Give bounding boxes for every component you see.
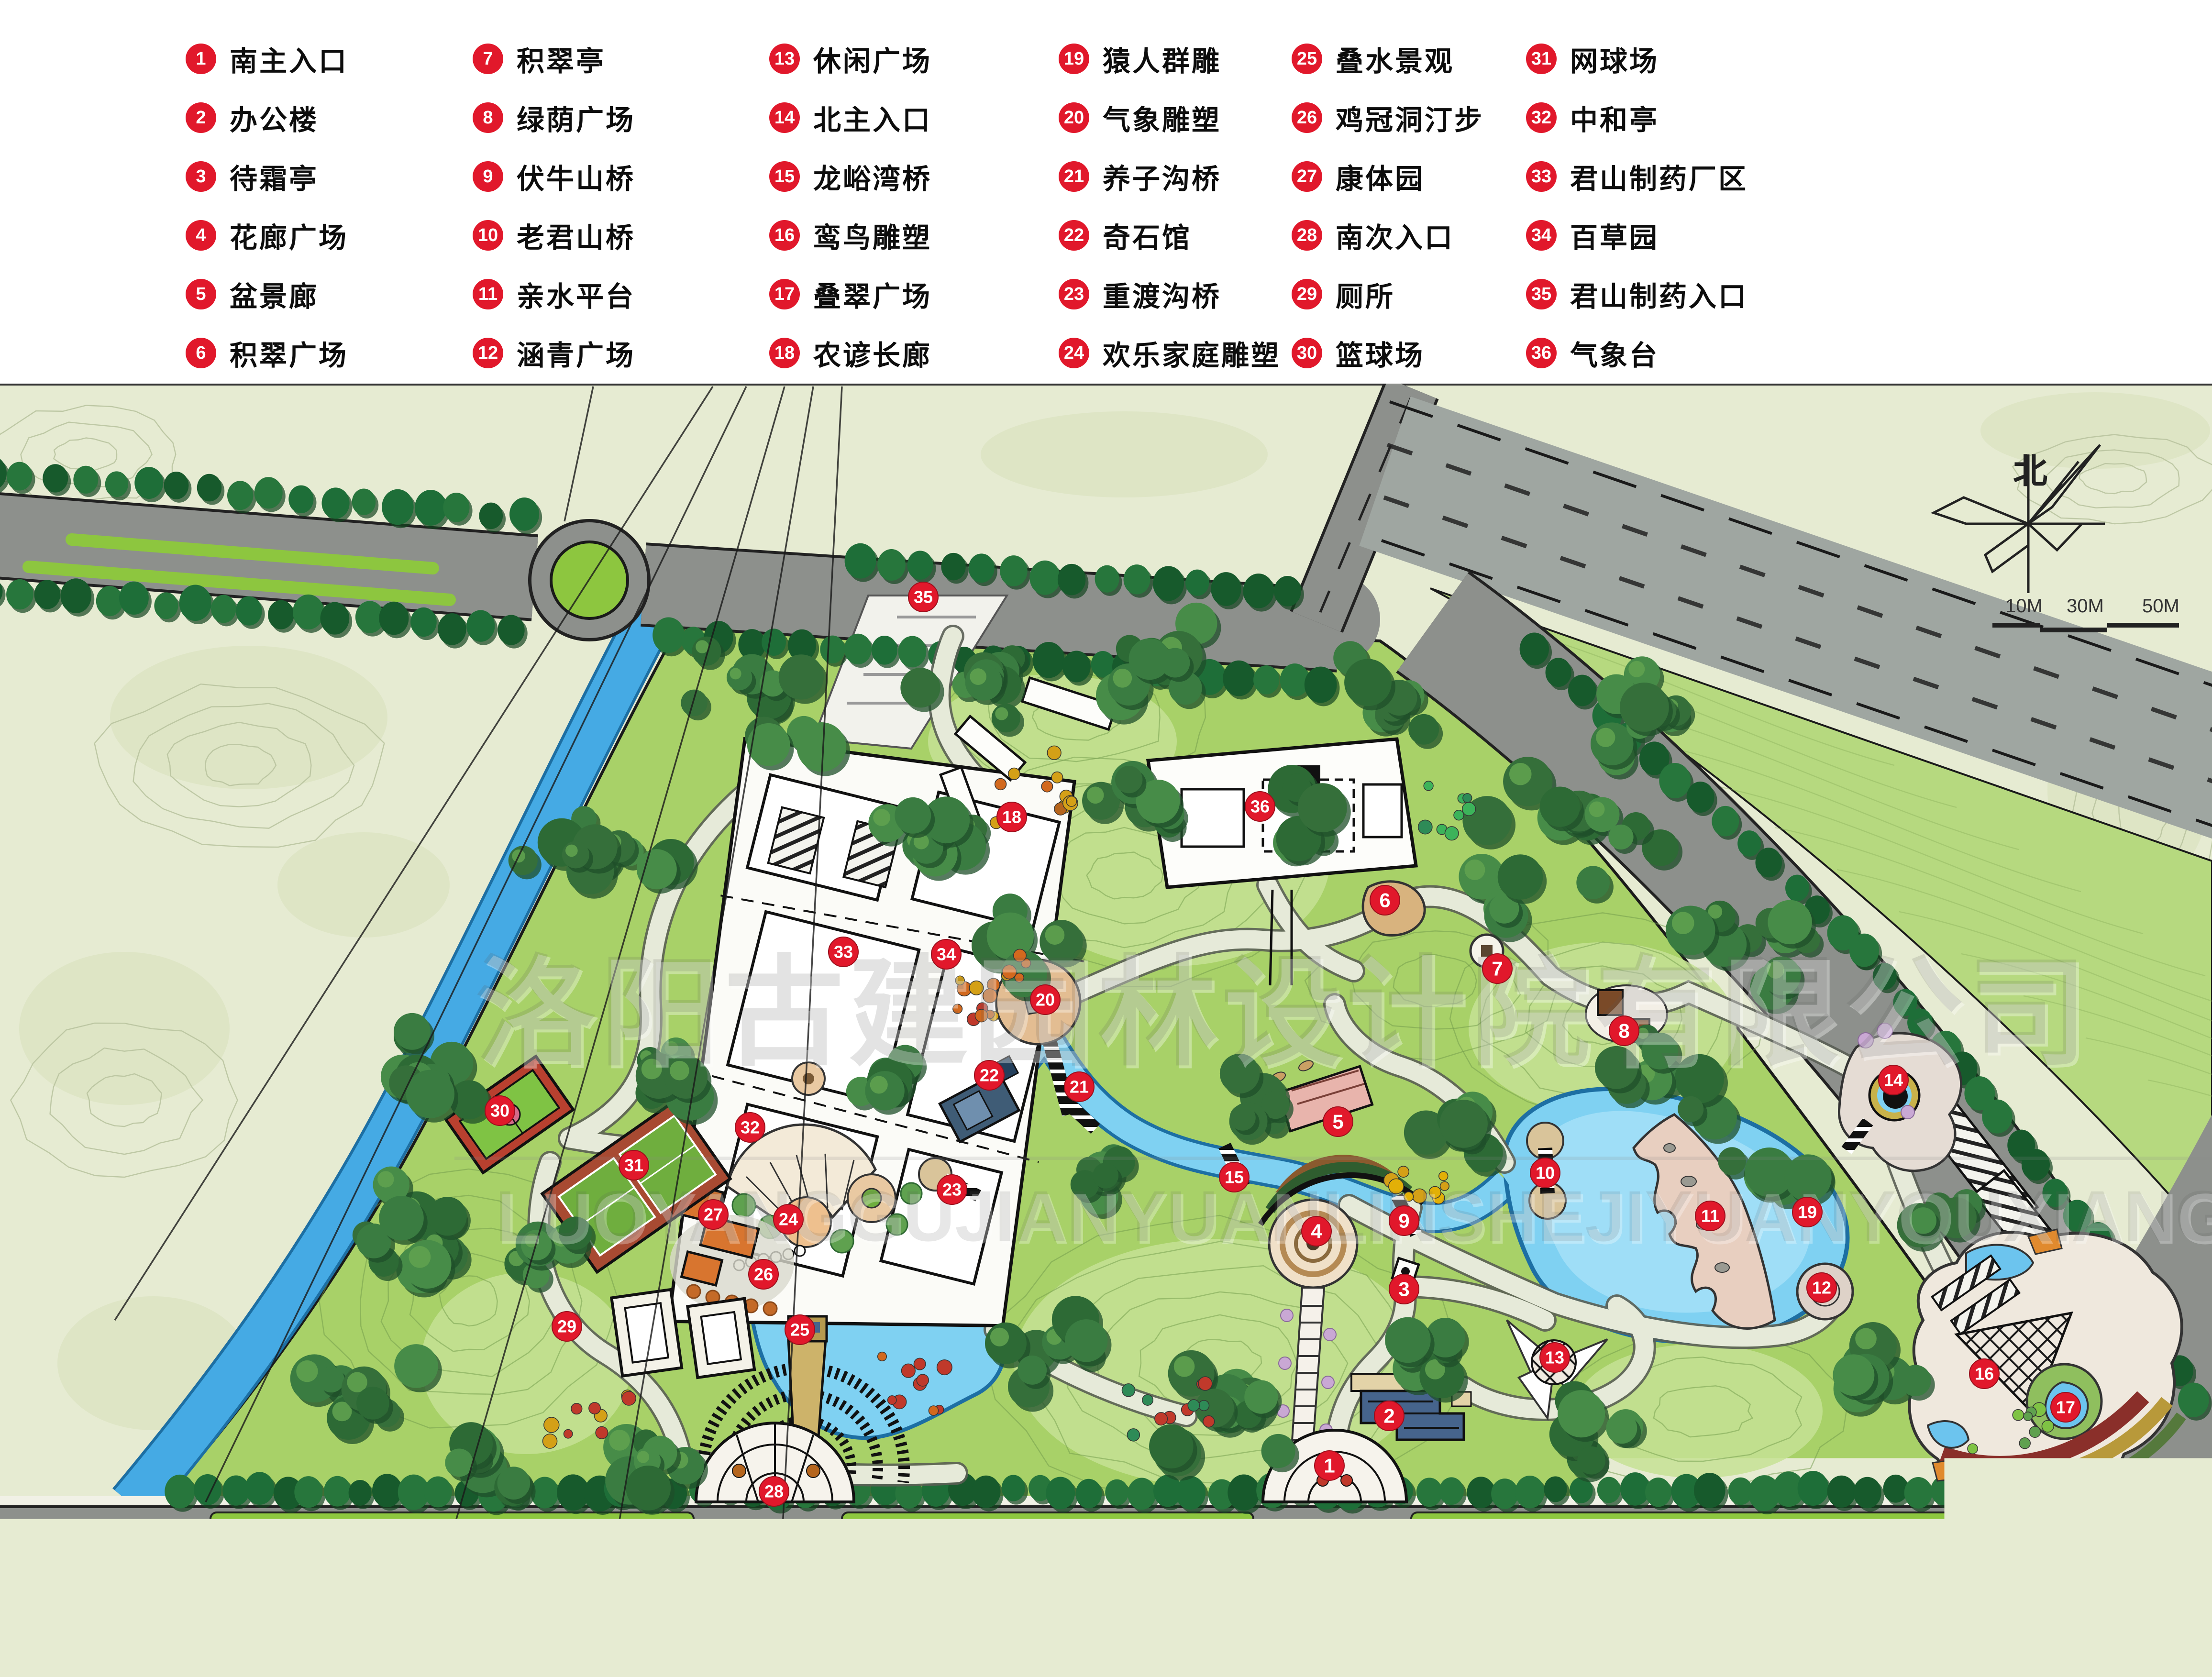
svg-text:23: 23 (942, 1180, 962, 1200)
legend-item-31: 31网球场 (1526, 44, 1659, 74)
map-marker-28: 28 (759, 1477, 789, 1506)
legend-label: 南主入口 (230, 39, 348, 79)
legend-item-33: 33君山制药厂区 (1526, 161, 1748, 192)
legend-label: 气象雕塑 (1103, 98, 1221, 138)
map-marker-8: 8 (1609, 1016, 1639, 1046)
legend-item-35: 35君山制药入口 (1526, 279, 1748, 309)
logo-company-name-cn: 洛阳古建园林设计院有限公司 (1713, 1612, 2198, 1645)
svg-text:25: 25 (790, 1320, 809, 1340)
legend-label: 积翠亭 (517, 39, 606, 79)
svg-text:11: 11 (1701, 1206, 1719, 1226)
legend-label: 办公楼 (230, 98, 319, 138)
legend-number-badge: 18 (769, 338, 800, 368)
svg-text:9: 9 (1398, 1210, 1409, 1232)
legend-label: 绿荫广场 (517, 98, 635, 138)
legend-item-22: 22奇石馆 (1059, 220, 1192, 251)
legend-number-badge: 6 (186, 338, 216, 368)
svg-text:16: 16 (1975, 1364, 1994, 1384)
legend-item-15: 15龙峪湾桥 (769, 161, 932, 192)
legend-label: 气象台 (1570, 333, 1659, 373)
legend-label: 中和亭 (1570, 98, 1659, 138)
legend-item-28: 28南次入口 (1292, 220, 1454, 251)
scale-30m: 30M (2067, 596, 2104, 617)
svg-text:5: 5 (1332, 1111, 1343, 1133)
map-marker-13: 13 (1540, 1343, 1570, 1372)
legend-number-badge: 22 (1059, 220, 1089, 251)
svg-text:33: 33 (834, 942, 853, 962)
legend-label: 龙峪湾桥 (813, 156, 932, 197)
legend-item-23: 23重渡沟桥 (1059, 279, 1221, 309)
legend-label: 鸡冠洞汀步 (1336, 98, 1484, 138)
legend-number-badge: 23 (1059, 279, 1089, 309)
legend-item-26: 26鸡冠洞汀步 (1292, 102, 1484, 133)
legend-number-badge: 17 (769, 279, 800, 309)
map-marker-7: 7 (1482, 954, 1512, 983)
company-logo: 洛阳古建园林设计院有限公司 LUOYANGGUJIANYUANLINSHEJIY… (1713, 1612, 2198, 1673)
legend-number-badge: 2 (186, 102, 216, 133)
legend-item-18: 18农谚长廊 (769, 338, 932, 368)
map-marker-22: 22 (974, 1060, 1004, 1090)
legend-number-badge: 14 (769, 102, 800, 133)
svg-text:8: 8 (1618, 1020, 1629, 1042)
legend-label: 待霜亭 (230, 156, 319, 197)
svg-text:24: 24 (779, 1210, 798, 1229)
map-marker-33: 33 (829, 937, 858, 967)
legend-number-badge: 32 (1526, 102, 1557, 133)
legend-label: 百草园 (1570, 215, 1659, 255)
legend-number-badge: 28 (1292, 220, 1322, 251)
svg-text:17: 17 (2056, 1398, 2075, 1417)
watermark-en: LUOYANGGUJIANYUANLINSHEJIYUANYOUXIANGONG… (495, 1176, 2212, 1256)
svg-text:19: 19 (1798, 1203, 1817, 1222)
svg-text:20: 20 (1036, 990, 1055, 1010)
svg-text:22: 22 (980, 1066, 999, 1085)
map-marker-5: 5 (1323, 1107, 1353, 1136)
svg-text:26: 26 (754, 1265, 773, 1284)
legend-number-badge: 27 (1292, 161, 1322, 192)
legend-number-badge: 10 (473, 220, 503, 251)
legend-item-7: 7积翠亭 (473, 44, 606, 74)
legend-label: 积翠广场 (230, 333, 348, 373)
legend-item-24: 24欢乐家庭雕塑 (1059, 338, 1281, 368)
svg-text:2: 2 (1383, 1405, 1394, 1427)
legend-item-2: 2办公楼 (186, 102, 319, 133)
scale-50m: 50M (2142, 596, 2179, 617)
legend-number-badge: 26 (1292, 102, 1322, 133)
legend-number-badge: 36 (1526, 338, 1557, 368)
legend-label: 重渡沟桥 (1103, 274, 1221, 314)
legend-number-badge: 33 (1526, 161, 1557, 192)
svg-text:34: 34 (937, 945, 956, 964)
svg-text:15: 15 (1225, 1168, 1244, 1187)
legend-item-1: 1南主入口 (186, 44, 348, 74)
legend-label: 亲水平台 (517, 274, 635, 314)
svg-text:6: 6 (1379, 889, 1390, 912)
map-marker-3: 3 (1389, 1274, 1419, 1304)
legend-item-13: 13休闲广场 (769, 44, 932, 74)
legend-number-badge: 3 (186, 161, 216, 192)
map-marker-10: 10 (1530, 1158, 1560, 1188)
legend-number-badge: 34 (1526, 220, 1557, 251)
map-marker-36: 36 (1245, 792, 1275, 821)
map-marker-31: 31 (619, 1150, 649, 1180)
svg-text:18: 18 (1002, 807, 1021, 827)
legend-label: 君山制药入口 (1570, 274, 1748, 314)
legend-number-badge: 13 (769, 44, 800, 74)
map-marker-6: 6 (1370, 885, 1400, 915)
legend-number-badge: 24 (1059, 338, 1089, 368)
legend-label: 康体园 (1336, 156, 1425, 197)
legend-number-badge: 4 (186, 220, 216, 251)
legend-number-badge: 29 (1292, 279, 1322, 309)
legend-label: 南次入口 (1336, 215, 1454, 255)
legend-number-badge: 35 (1526, 279, 1557, 309)
legend-item-34: 34百草园 (1526, 220, 1659, 251)
legend-number-badge: 15 (769, 161, 800, 192)
legend-number-badge: 16 (769, 220, 800, 251)
legend-number-badge: 20 (1059, 102, 1089, 133)
legend-item-9: 9伏牛山桥 (473, 161, 635, 192)
luanniao-plaza (1909, 1229, 2181, 1494)
legend-label: 欢乐家庭雕塑 (1103, 333, 1281, 373)
legend-item-3: 3待霜亭 (186, 161, 319, 192)
legend-item-16: 16鸾鸟雕塑 (769, 220, 932, 251)
legend-item-27: 27康体园 (1292, 161, 1425, 192)
legend-item-21: 21养子沟桥 (1059, 161, 1221, 192)
map-marker-19: 19 (1792, 1197, 1822, 1227)
legend-item-8: 8绿荫广场 (473, 102, 635, 133)
map-marker-25: 25 (785, 1315, 815, 1345)
map-marker-18: 18 (997, 802, 1027, 832)
legend-label: 篮球场 (1336, 333, 1425, 373)
legend-item-20: 20气象雕塑 (1059, 102, 1221, 133)
legend-label: 盆景廊 (230, 274, 319, 314)
legend-label: 老君山桥 (517, 215, 635, 255)
site-plan-page: 洛阳古建园林设计院有限公司 洛阳古建园林设计院有限公司 LUOYANGGUJIA… (0, 0, 2212, 1677)
scale-10m: 10M (2005, 596, 2043, 617)
map-marker-26: 26 (749, 1259, 778, 1289)
svg-text:36: 36 (1250, 797, 1270, 816)
legend-number-badge: 8 (473, 102, 503, 133)
legend-item-5: 5盆景廊 (186, 279, 319, 309)
legend-label: 花廊广场 (230, 215, 348, 255)
legend-item-19: 19猿人群雕 (1059, 44, 1221, 74)
svg-text:3: 3 (1398, 1278, 1409, 1301)
legend-number-badge: 30 (1292, 338, 1322, 368)
map-marker-16: 16 (1969, 1359, 1999, 1389)
map-marker-27: 27 (698, 1200, 728, 1229)
legend-label: 猿人群雕 (1103, 39, 1221, 79)
map-marker-32: 32 (735, 1113, 765, 1142)
logo-company-name-en: LUOYANGGUJIANYUANLINSHEJIYUANYOUXIANGONG… (1713, 1653, 2168, 1673)
map-marker-11: 11 (1695, 1201, 1725, 1231)
legend-label: 鸾鸟雕塑 (813, 215, 932, 255)
map-marker-12: 12 (1807, 1273, 1836, 1302)
map-marker-1: 1 (1315, 1451, 1344, 1480)
legend-label: 叠翠广场 (813, 274, 932, 314)
map-marker-9: 9 (1389, 1206, 1419, 1236)
legend: 1南主入口2办公楼3待霜亭4花廊广场5盆景廊6积翠广场7积翠亭8绿荫广场9伏牛山… (0, 0, 2212, 384)
legend-label: 奇石馆 (1103, 215, 1192, 255)
legend-number-badge: 9 (473, 161, 503, 192)
map-marker-29: 29 (552, 1312, 582, 1341)
svg-text:10: 10 (1536, 1163, 1555, 1183)
map-marker-4: 4 (1302, 1216, 1331, 1246)
legend-item-32: 32中和亭 (1526, 102, 1659, 133)
legend-number-badge: 25 (1292, 44, 1322, 74)
svg-text:28: 28 (764, 1482, 784, 1501)
map-marker-21: 21 (1064, 1072, 1094, 1102)
legend-item-14: 14北主入口 (769, 102, 932, 133)
legend-item-4: 4花廊广场 (186, 220, 348, 251)
legend-label: 涵青广场 (517, 333, 635, 373)
legend-label: 养子沟桥 (1103, 156, 1221, 197)
legend-label: 北主入口 (813, 98, 932, 138)
map-marker-2: 2 (1374, 1401, 1404, 1431)
legend-label: 厕所 (1336, 274, 1395, 314)
legend-item-29: 29厕所 (1292, 279, 1395, 309)
legend-number-badge: 7 (473, 44, 503, 74)
legend-item-10: 10老君山桥 (473, 220, 635, 251)
legend-number-badge: 11 (473, 279, 503, 309)
svg-text:14: 14 (1884, 1070, 1903, 1090)
svg-text:30: 30 (490, 1101, 509, 1121)
svg-text:12: 12 (1812, 1278, 1831, 1298)
legend-item-30: 30篮球场 (1292, 338, 1425, 368)
legend-number-badge: 5 (186, 279, 216, 309)
legend-number-badge: 12 (473, 338, 503, 368)
svg-text:32: 32 (741, 1118, 760, 1137)
svg-text:13: 13 (1545, 1348, 1564, 1368)
legend-item-6: 6积翠广场 (186, 338, 348, 368)
legend-number-badge: 1 (186, 44, 216, 74)
svg-text:29: 29 (557, 1317, 576, 1336)
logo-rule (1713, 1648, 2198, 1651)
map-marker-20: 20 (1030, 985, 1060, 1015)
legend-number-badge: 21 (1059, 161, 1089, 192)
map-marker-15: 15 (1219, 1162, 1249, 1192)
legend-label: 叠水景观 (1336, 39, 1454, 79)
svg-text:4: 4 (1311, 1220, 1322, 1243)
map-marker-23: 23 (937, 1175, 967, 1204)
map-marker-17: 17 (2051, 1392, 2080, 1422)
map-marker-24: 24 (774, 1204, 803, 1234)
svg-text:31: 31 (624, 1156, 643, 1175)
legend-item-36: 36气象台 (1526, 338, 1659, 368)
legend-label: 君山制药厂区 (1570, 156, 1748, 197)
legend-label: 伏牛山桥 (517, 156, 635, 197)
legend-label: 休闲广场 (813, 39, 932, 79)
legend-item-25: 25叠水景观 (1292, 44, 1454, 74)
map-marker-34: 34 (931, 939, 961, 969)
legend-number-badge: 19 (1059, 44, 1089, 74)
north-label: 北 (2013, 452, 2047, 491)
map-marker-30: 30 (485, 1096, 515, 1125)
map-marker-35: 35 (908, 582, 938, 612)
map-marker-14: 14 (1879, 1065, 1908, 1095)
svg-text:27: 27 (704, 1205, 723, 1225)
watermark-cn: 洛阳古建园林设计院有限公司 (476, 946, 2092, 1080)
svg-text:7: 7 (1492, 958, 1503, 980)
svg-text:21: 21 (1070, 1077, 1089, 1097)
legend-number-badge: 31 (1526, 44, 1557, 74)
legend-label: 网球场 (1570, 39, 1659, 79)
legend-item-17: 17叠翠广场 (769, 279, 932, 309)
svg-text:35: 35 (914, 587, 933, 607)
legend-item-11: 11亲水平台 (473, 279, 635, 309)
legend-item-12: 12涵青广场 (473, 338, 635, 368)
legend-label: 农谚长廊 (813, 333, 932, 373)
svg-text:1: 1 (1324, 1455, 1335, 1477)
